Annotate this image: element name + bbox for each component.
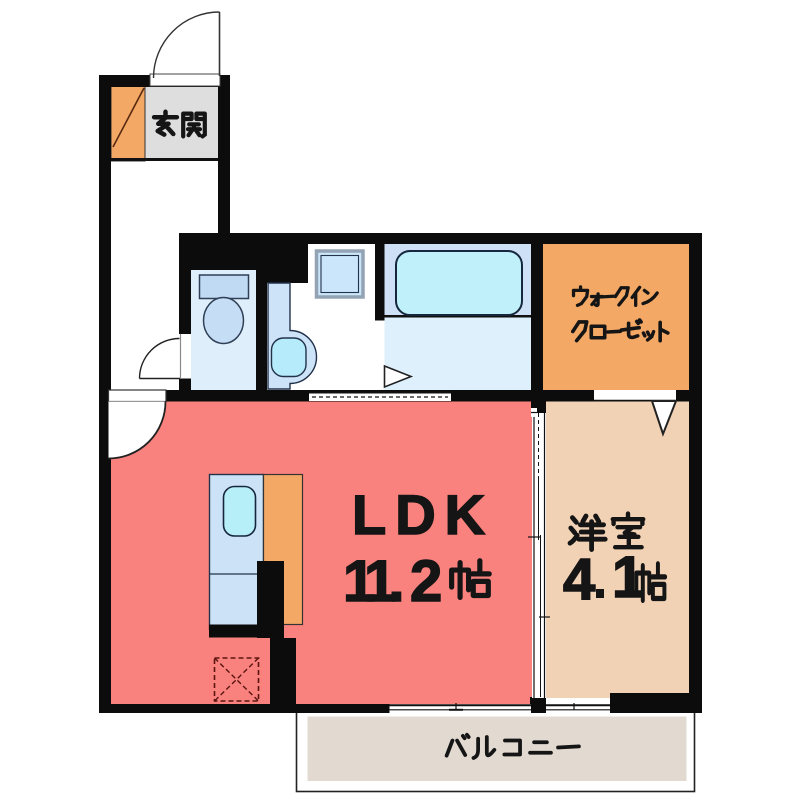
svg-text:11.: 11. (343, 549, 401, 614)
svg-text:4: 4 (563, 547, 595, 612)
svg-text:2: 2 (410, 549, 442, 614)
svg-text:1: 1 (612, 545, 644, 610)
svg-text:LDK: LDK (352, 483, 494, 546)
